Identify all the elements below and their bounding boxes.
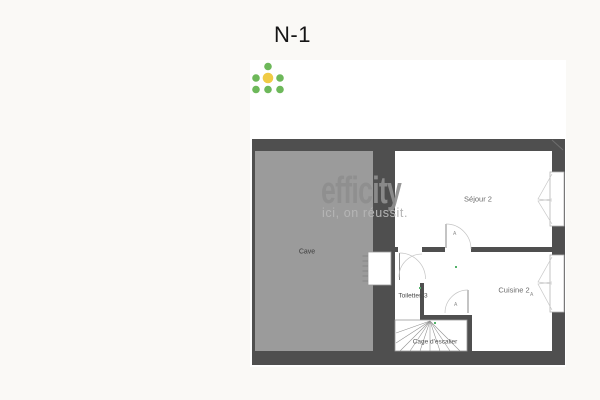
floorplan-canvas: Cave Séjour 2 Cuisine 2 Toilettes 3 Cage… bbox=[250, 60, 566, 367]
page-title: N-1 bbox=[274, 22, 311, 48]
wall-center bbox=[373, 151, 395, 351]
wall-stairs-top bbox=[424, 315, 472, 320]
window-cuisine bbox=[538, 255, 564, 312]
door-marker: A bbox=[454, 303, 457, 308]
wall-divider-seg2 bbox=[422, 247, 445, 252]
hatch-opening bbox=[368, 252, 391, 285]
room-label-sejour: Séjour 2 bbox=[464, 195, 492, 204]
door-toilettes bbox=[399, 253, 426, 280]
door-marker: A bbox=[453, 232, 456, 237]
wall-left bbox=[252, 151, 255, 351]
floorplan-drawing bbox=[250, 60, 566, 367]
wall-divider-seg3 bbox=[471, 247, 553, 252]
wall-stairs-right bbox=[467, 320, 472, 351]
room-label-cuisine: Cuisine 2 bbox=[498, 286, 529, 295]
room-label-cave: Cave bbox=[299, 249, 315, 256]
window-sejour bbox=[538, 172, 564, 226]
wall-top bbox=[252, 139, 564, 151]
room-label-escalier: Cage d'escalier bbox=[413, 339, 458, 346]
wall-bottom bbox=[252, 351, 564, 365]
door-marker: A bbox=[530, 293, 533, 298]
wall-divider-seg1 bbox=[395, 247, 398, 252]
staircase bbox=[395, 320, 467, 351]
door-sejour bbox=[446, 224, 471, 249]
room-label-toilettes: Toilettes 3 bbox=[398, 293, 427, 300]
